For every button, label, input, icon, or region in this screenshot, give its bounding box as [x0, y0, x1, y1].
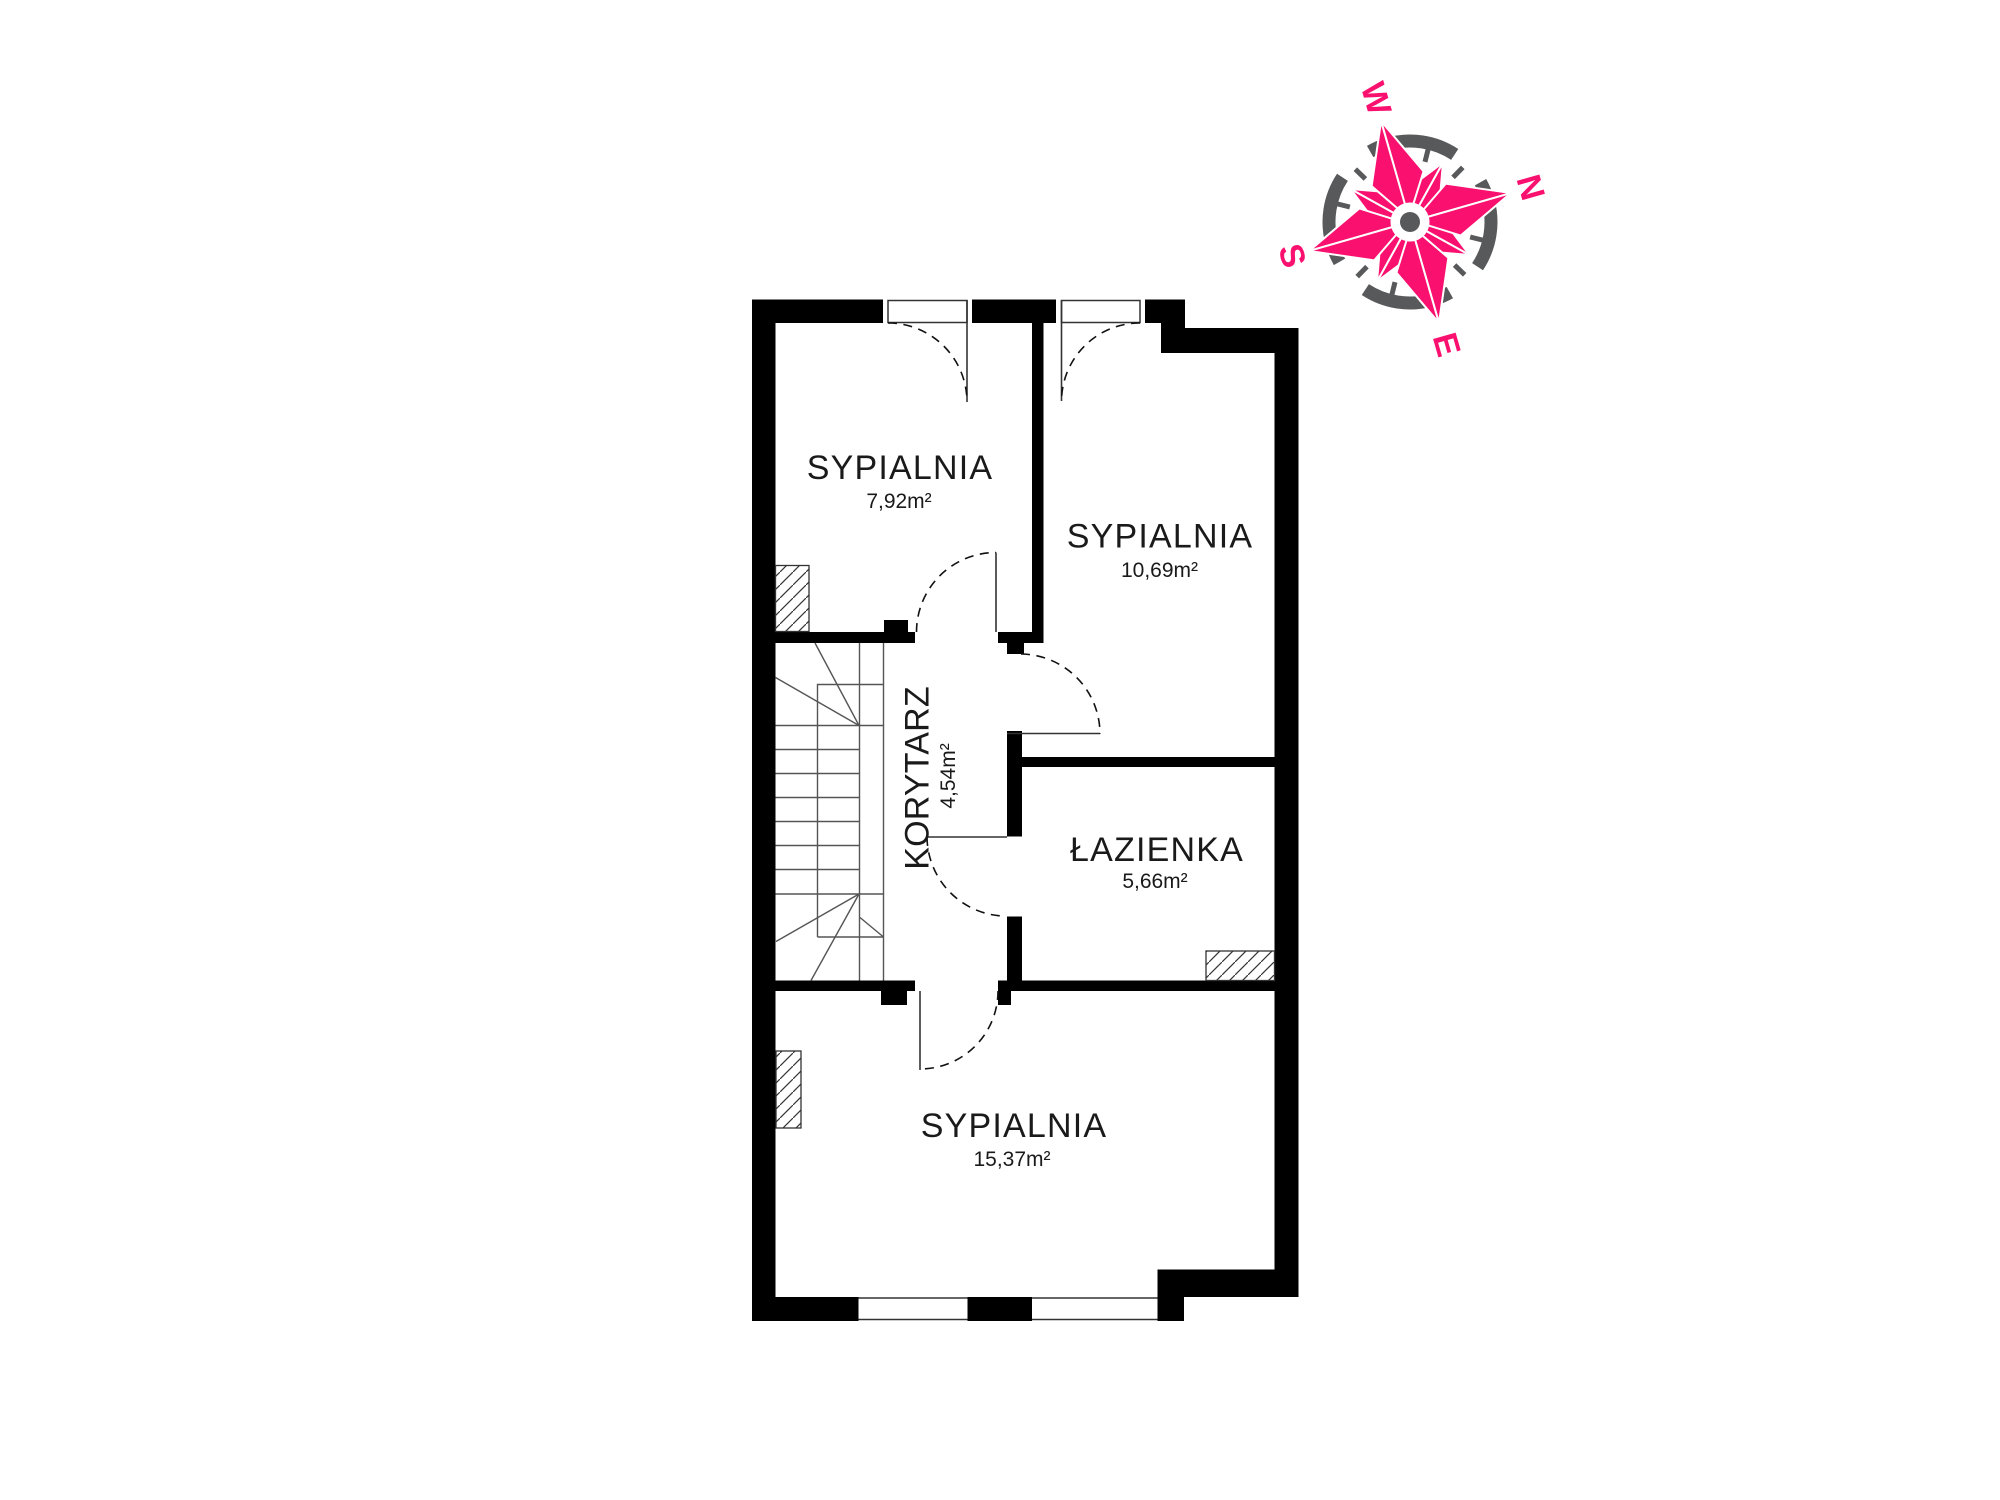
svg-text:15,37m²: 15,37m²: [973, 1148, 1050, 1171]
svg-text:SYPIALNIA: SYPIALNIA: [921, 1107, 1108, 1145]
svg-text:ŁAZIENKA: ŁAZIENKA: [1070, 831, 1244, 869]
svg-text:7,92m²: 7,92m²: [866, 490, 931, 513]
svg-text:KORYTARZ: KORYTARZ: [899, 686, 937, 870]
svg-text:5,66m²: 5,66m²: [1122, 870, 1187, 893]
svg-text:SYPIALNIA: SYPIALNIA: [807, 449, 994, 487]
svg-text:10,69m²: 10,69m²: [1121, 559, 1198, 582]
svg-text:4,54m²: 4,54m²: [937, 743, 960, 808]
svg-text:SYPIALNIA: SYPIALNIA: [1067, 518, 1254, 556]
